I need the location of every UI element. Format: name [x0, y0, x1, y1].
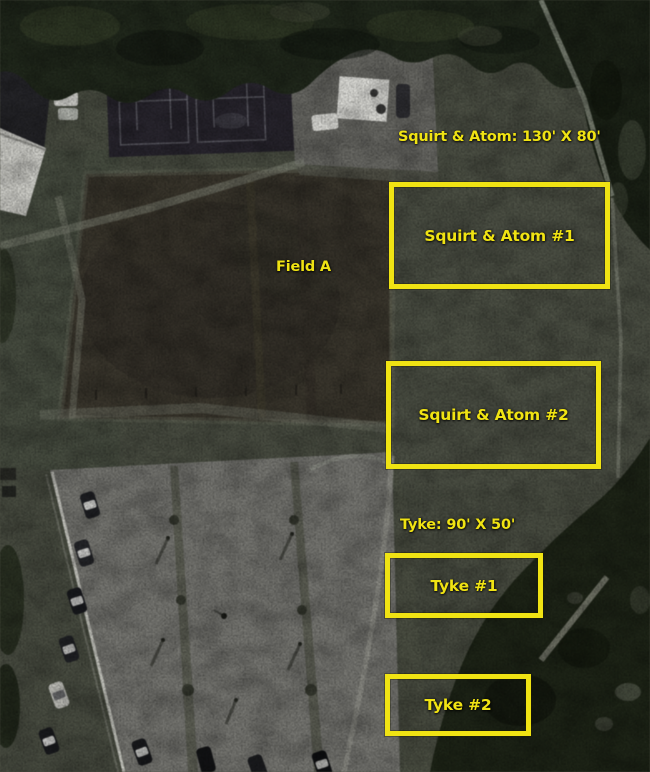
- field-box-label: Squirt & Atom #2: [418, 406, 568, 424]
- field-box-tyke-2: Tyke #2: [385, 674, 531, 736]
- aerial-map: Squirt & Atom: 130' X 80' Field A Tyke: …: [0, 0, 650, 772]
- field-box-label: Tyke #2: [424, 696, 491, 714]
- field-box-label: Squirt & Atom #1: [424, 227, 574, 245]
- field-box-squirt-atom-2: Squirt & Atom #2: [386, 361, 601, 469]
- field-box-label: Tyke #1: [430, 577, 497, 595]
- field-box-squirt-atom-1: Squirt & Atom #1: [389, 182, 610, 289]
- size-label-tyke: Tyke: 90' X 50': [400, 518, 515, 534]
- field-a-label: Field A: [276, 260, 331, 276]
- field-box-tyke-1: Tyke #1: [385, 553, 543, 618]
- size-label-squirt-atom: Squirt & Atom: 130' X 80': [398, 130, 601, 146]
